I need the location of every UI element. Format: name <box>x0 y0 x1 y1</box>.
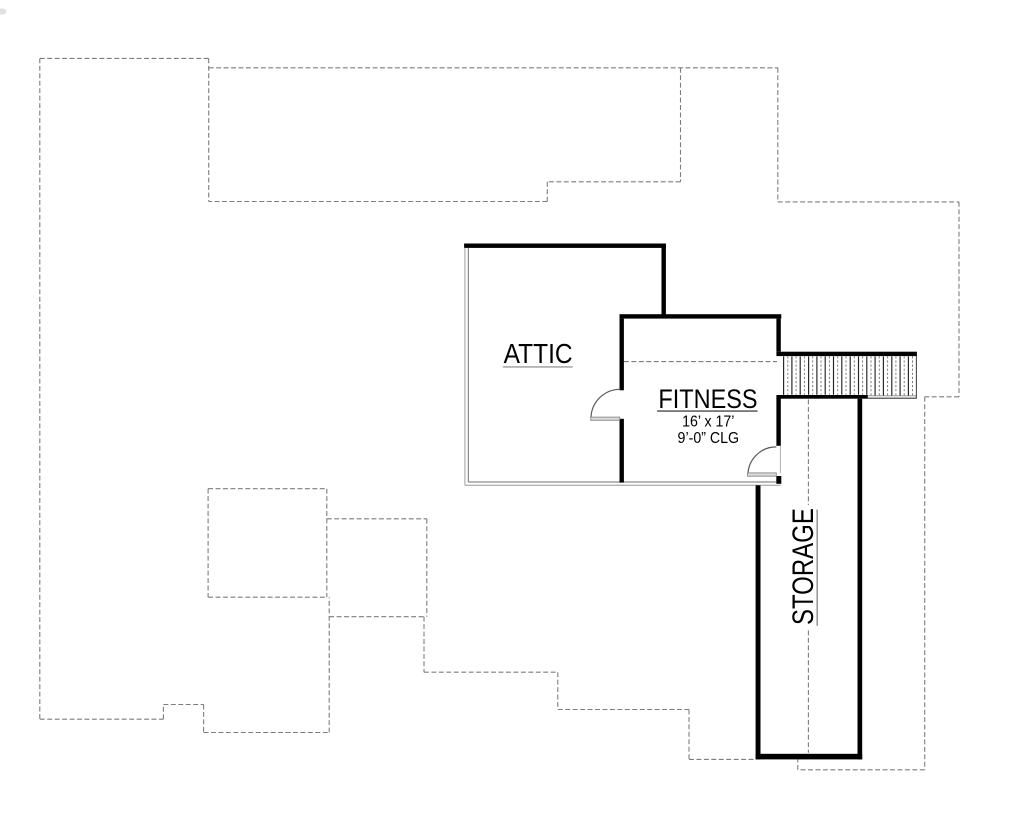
svg-text:9’-0” CLG: 9’-0” CLG <box>678 429 739 447</box>
svg-text:16’ x 17’: 16’ x 17’ <box>682 413 734 431</box>
svg-text:ATTIC: ATTIC <box>504 338 573 370</box>
svg-text:STORAGE: STORAGE <box>787 508 820 625</box>
svg-text:FITNESS: FITNESS <box>658 385 757 415</box>
